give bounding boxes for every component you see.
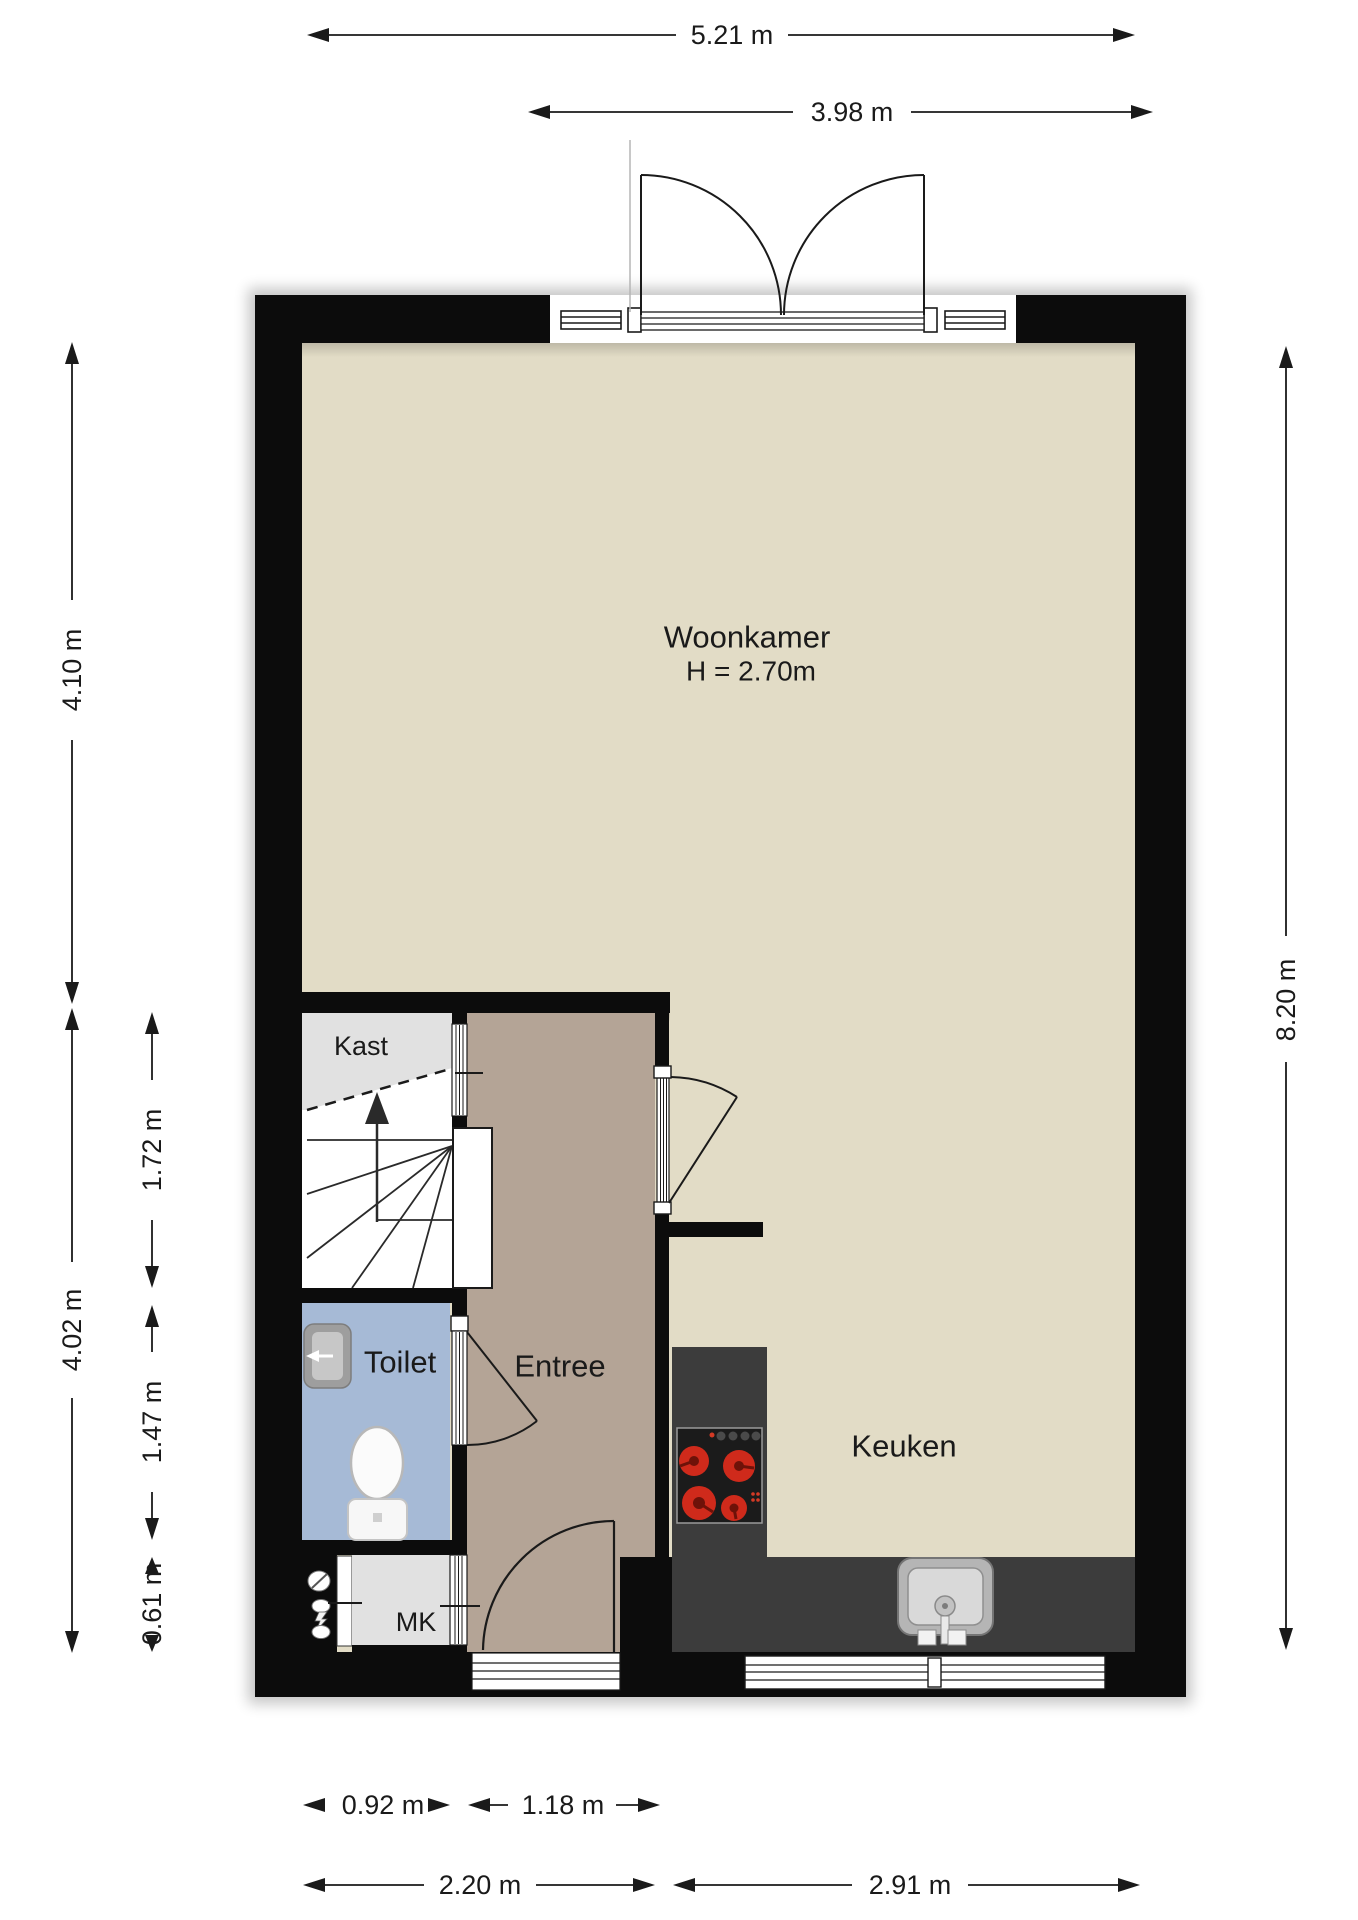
- wall-entree-corner: [620, 1557, 672, 1652]
- wall-woonkamer-hall: [302, 992, 670, 1013]
- dim-bottom-inner-left: 0.92 m: [342, 1790, 425, 1820]
- label-mk: MK: [396, 1607, 437, 1637]
- double-door-threshold: [641, 312, 924, 330]
- dim-inner-stairs: 1.72 m: [137, 1109, 167, 1192]
- dim-inner-toilet: 1.47 m: [137, 1381, 167, 1464]
- stove: [677, 1428, 762, 1523]
- dim-right-total: 8.20 m: [1271, 959, 1301, 1042]
- top-window-left: [561, 311, 621, 329]
- floor-entree: [467, 1013, 655, 1652]
- toilet-bowl: [348, 1427, 407, 1540]
- label-toilet: Toilet: [364, 1345, 437, 1380]
- dim-left-upper: 4.10 m: [57, 629, 87, 712]
- kitchen-sink: [898, 1558, 993, 1645]
- door-jamb-right: [924, 308, 937, 332]
- label-entree: Entree: [514, 1349, 605, 1384]
- dim-top-total: 5.21 m: [691, 20, 774, 50]
- wall-entree-top: [655, 992, 669, 1078]
- kitchen-window: [745, 1656, 1105, 1689]
- dim-bottom-left: 2.20 m: [439, 1870, 522, 1900]
- wall-toilet-mk: [302, 1540, 467, 1555]
- wall-stub-keuken: [669, 1222, 763, 1237]
- mk-panel: [337, 1556, 352, 1646]
- toilet-sink: [304, 1324, 351, 1388]
- label-ceiling-height: H = 2.70m: [686, 656, 816, 687]
- label-keuken: Keuken: [851, 1429, 956, 1464]
- floor-plan-page: Woonkamer H = 2.70m Kast Toilet Entree K…: [0, 0, 1358, 1920]
- wall-entree-mid: [655, 1202, 669, 1557]
- dim-bottom-right: 2.91 m: [869, 1870, 952, 1900]
- wall-stairs-toilet: [302, 1288, 467, 1303]
- front-door-threshold: [472, 1653, 620, 1690]
- floor-shading-top: [302, 343, 1135, 357]
- floor-plan-drawing: Woonkamer H = 2.70m Kast Toilet Entree K…: [0, 0, 1358, 1920]
- top-window-right: [945, 311, 1005, 329]
- label-kast: Kast: [334, 1031, 389, 1061]
- understairs-panel: [453, 1128, 492, 1288]
- dim-inner-mk: 0.61 m: [137, 1563, 167, 1646]
- dim-bottom-inner-right: 1.18 m: [522, 1790, 605, 1820]
- dim-left-lower: 4.02 m: [57, 1289, 87, 1372]
- dim-top-doors: 3.98 m: [811, 97, 894, 127]
- label-woonkamer: Woonkamer: [664, 620, 831, 655]
- mk-bottom-fill: [352, 1645, 467, 1652]
- door-mk-frame: [450, 1555, 467, 1645]
